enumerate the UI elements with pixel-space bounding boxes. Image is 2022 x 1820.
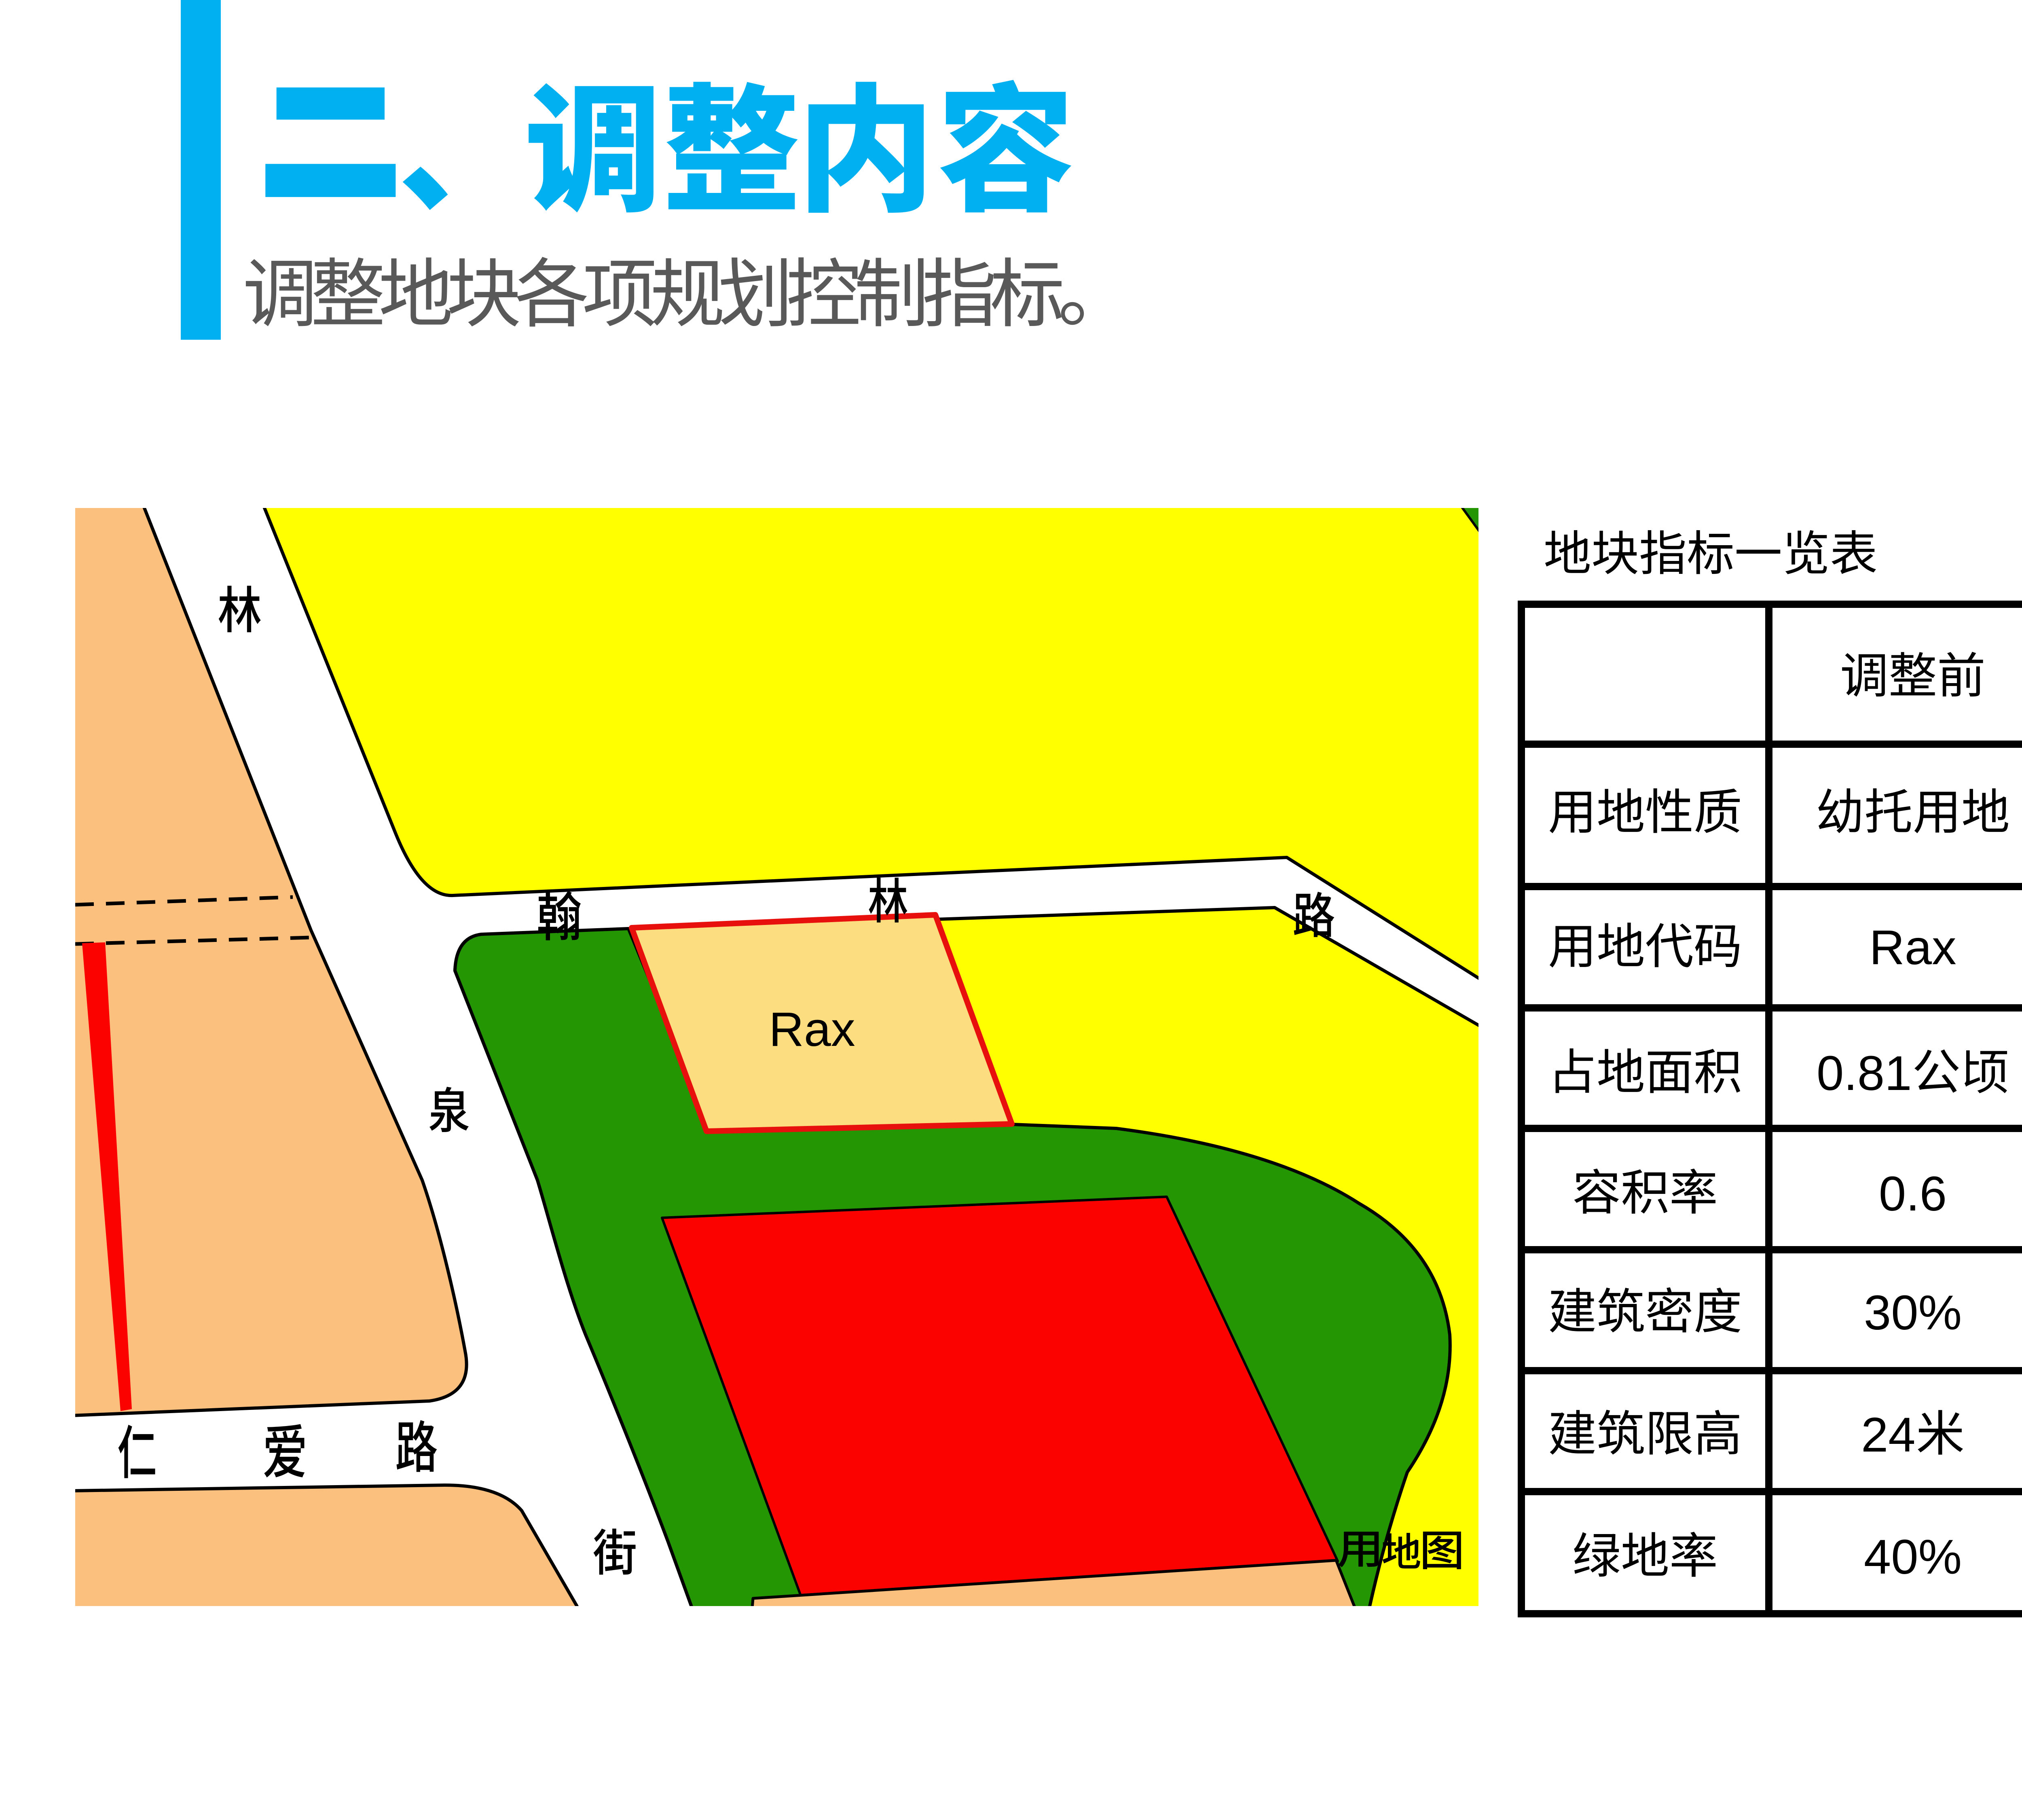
- svg-text:Rax: Rax: [769, 1002, 855, 1056]
- svg-text:24: 24: [1861, 1407, 1916, 1462]
- svg-text:Rax: Rax: [1869, 920, 1956, 975]
- svg-text:40%: 40%: [1864, 1529, 1962, 1584]
- svg-text:0.6: 0.6: [1879, 1166, 1947, 1221]
- svg-text:30%: 30%: [1864, 1285, 1962, 1340]
- svg-text:0.81: 0.81: [1817, 1045, 1912, 1100]
